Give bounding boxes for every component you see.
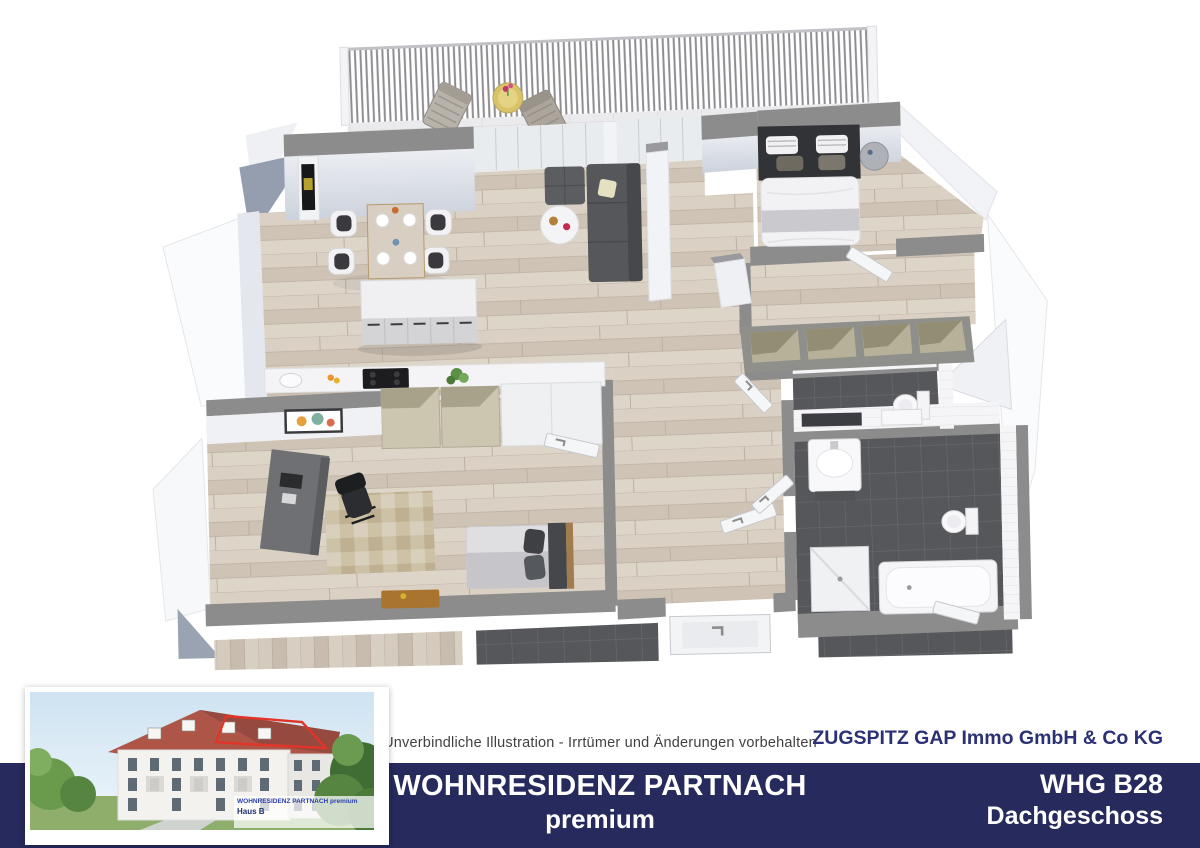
bedside-table bbox=[860, 142, 889, 171]
terrace-glass-door bbox=[473, 122, 604, 173]
rug bbox=[324, 491, 435, 575]
coffee-table bbox=[540, 205, 579, 244]
desk bbox=[260, 449, 330, 555]
guest-bed bbox=[466, 523, 574, 591]
kitchen-island bbox=[357, 278, 483, 357]
flyer-page: Unverbindliche Illustration - Irrtümer u… bbox=[0, 0, 1200, 848]
wooden-bench bbox=[381, 589, 439, 608]
inset-caption-title: WOHNRESIDENZ PARTNACH premium bbox=[237, 798, 377, 805]
cooktop bbox=[363, 368, 409, 389]
inset-caption-box: WOHNRESIDENZ PARTNACH premium Haus B bbox=[234, 796, 380, 828]
entrance-door bbox=[670, 615, 771, 655]
toilet bbox=[942, 508, 979, 535]
kitchen-sink bbox=[280, 373, 302, 387]
shower bbox=[810, 546, 869, 611]
hallway-floor bbox=[612, 342, 785, 605]
tv-sideboard bbox=[298, 156, 319, 220]
wall-art bbox=[285, 409, 341, 432]
inset-caption-haus: Haus B bbox=[237, 807, 377, 816]
bath-shelf bbox=[882, 409, 922, 425]
washbasin bbox=[808, 439, 861, 502]
floor-plan-rendering bbox=[0, 0, 1200, 680]
mirror bbox=[802, 413, 862, 427]
terrace-table bbox=[493, 83, 524, 114]
floor-name: Dachgeschoss bbox=[987, 802, 1163, 831]
company-name: ZUGSPITZ GAP Immo GmbH & Co KG bbox=[812, 727, 1163, 750]
sofa-pillow bbox=[597, 178, 617, 198]
building-inset-photo: WOHNRESIDENZ PARTNACH premium Haus B bbox=[25, 687, 389, 845]
unit-number: WHG B28 bbox=[1040, 769, 1163, 800]
